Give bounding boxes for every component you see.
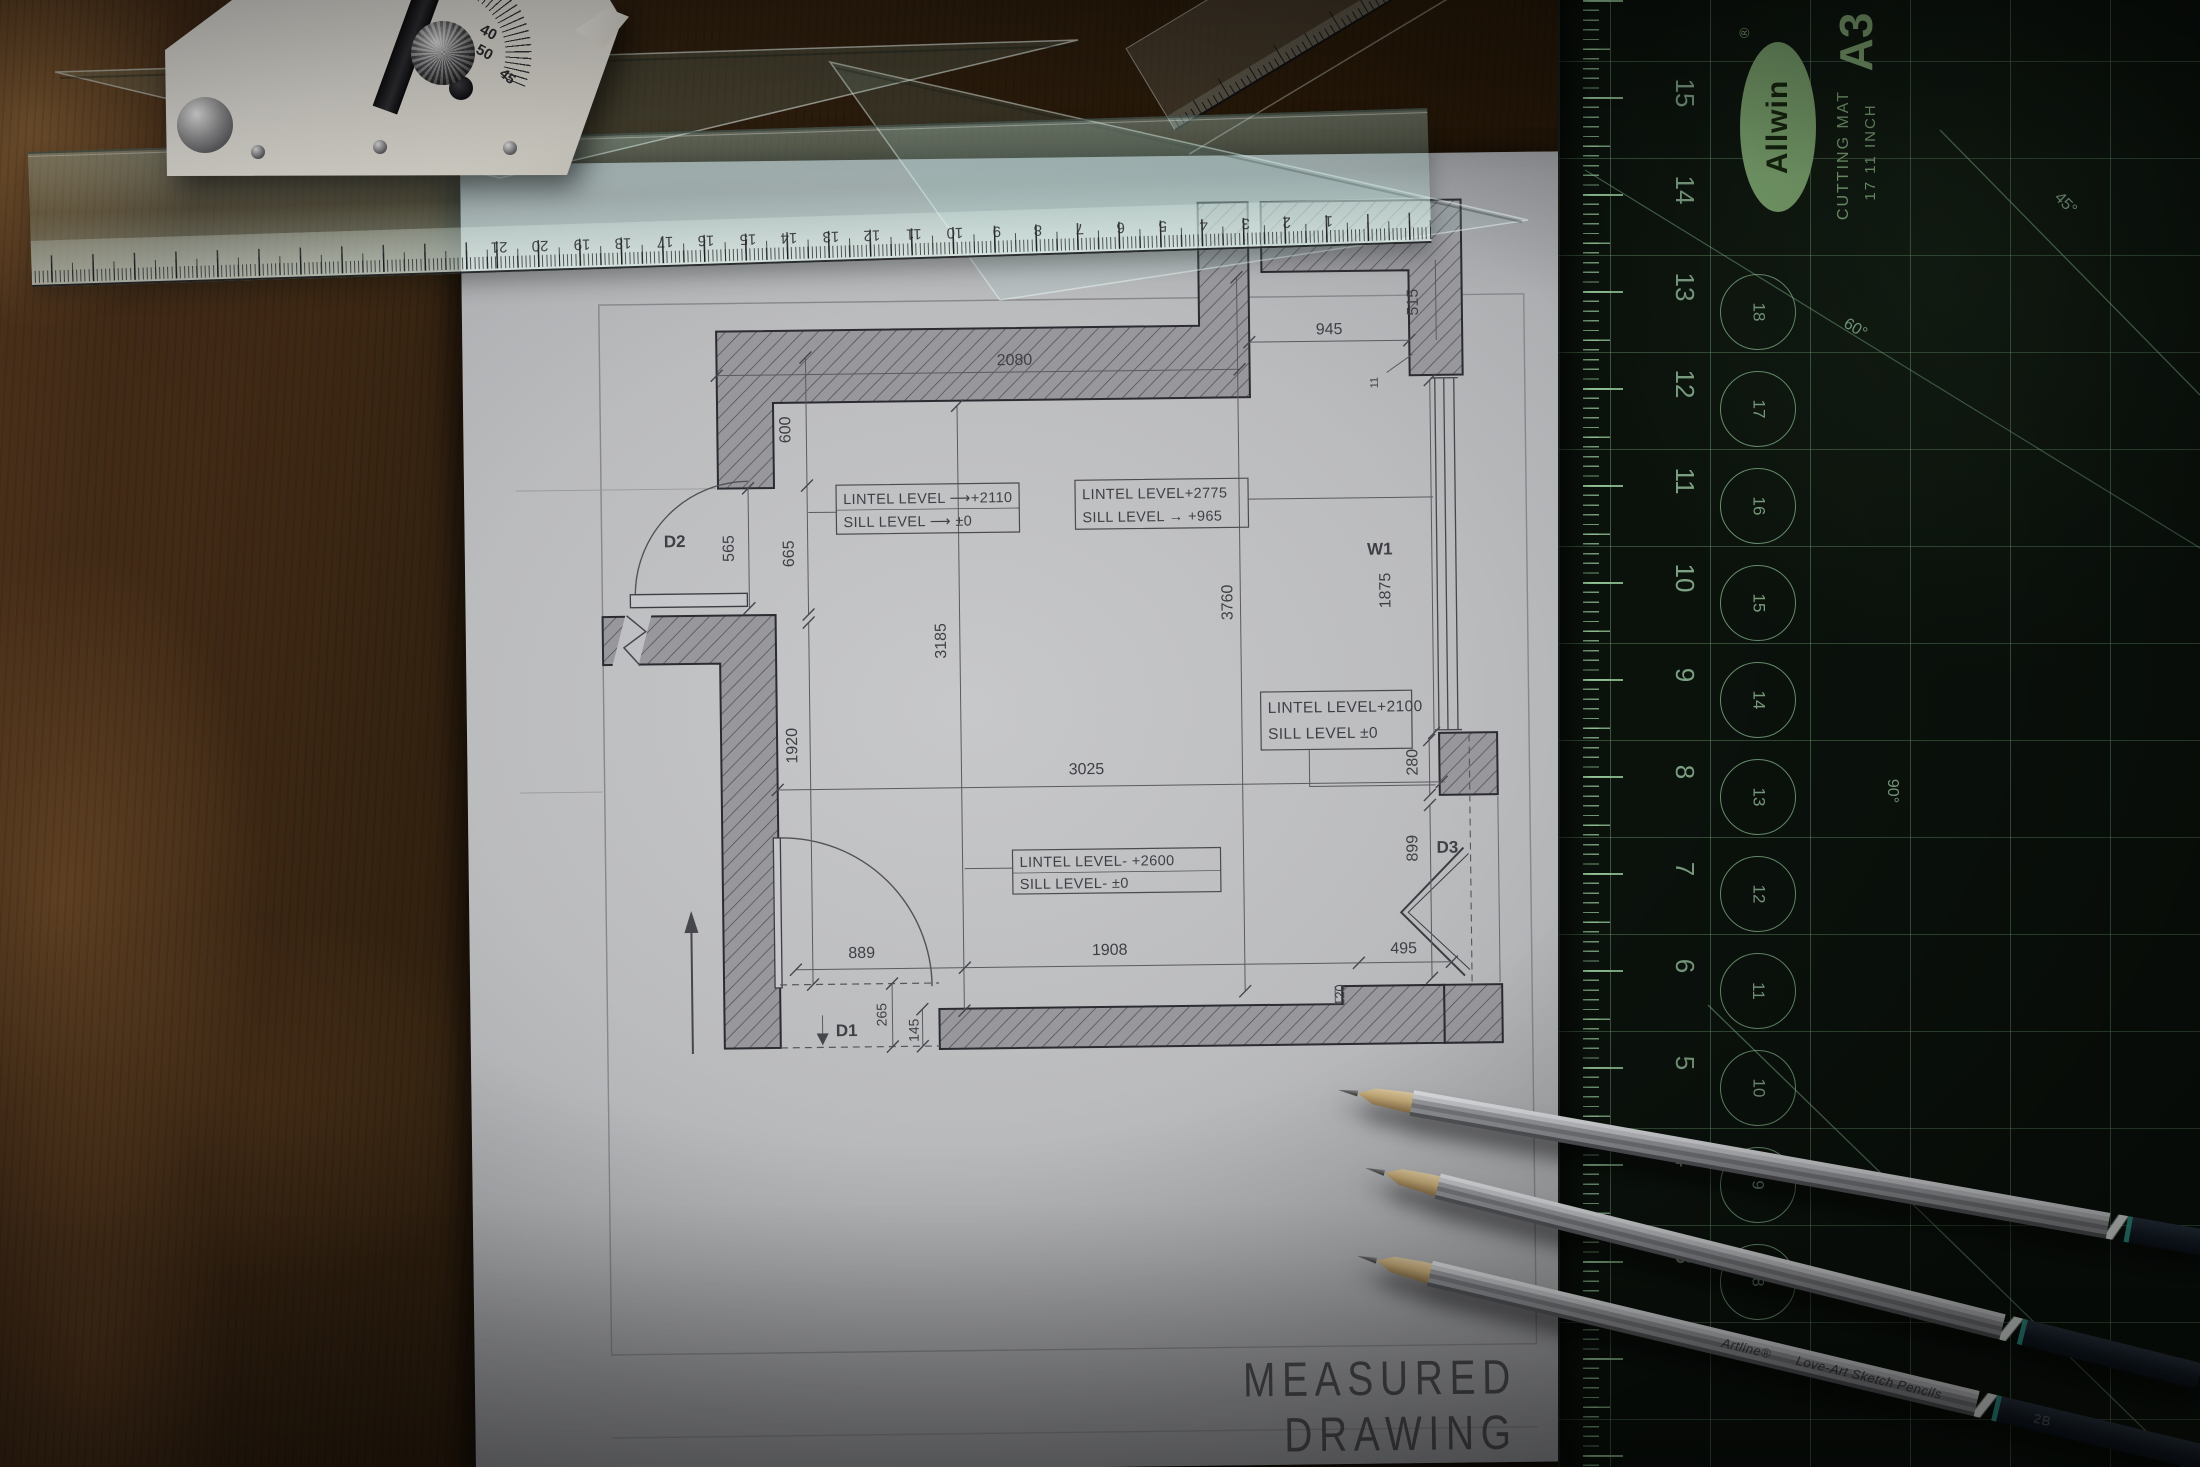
mat-circle-label: 12 — [1748, 885, 1768, 904]
label-d3: D3 — [1436, 838, 1458, 857]
mat-circle-number: 12 — [1720, 856, 1796, 932]
label-d2: D2 — [664, 532, 686, 551]
dim-945: 945 — [1316, 321, 1343, 338]
mat-circle-label: 16 — [1748, 497, 1768, 516]
dim-495: 495 — [1390, 940, 1417, 957]
mat-grid-number: 7 — [1670, 854, 1700, 884]
dim-1908: 1908 — [1092, 942, 1128, 959]
mat-circle-label: 15 — [1748, 594, 1768, 613]
note-lintel-2600: LINTEL LEVEL- +2600 — [1020, 853, 1175, 871]
ruler-number: 19 — [571, 235, 594, 253]
mat-circle-number: 15 — [1720, 565, 1796, 641]
dim-2080: 2080 — [997, 352, 1033, 369]
note-sill-0b: SILL LEVEL ±0 — [1268, 725, 1378, 743]
ruler-number: 6 — [1110, 218, 1133, 236]
dim-11: 11 — [1369, 377, 1381, 389]
mat-grid-number: 11 — [1670, 466, 1700, 496]
ruler-number: 3 — [1234, 214, 1257, 232]
entry-arrow — [684, 911, 700, 1054]
mat-grid-number: 15 — [1670, 78, 1700, 108]
mat-grid-number: 12 — [1670, 369, 1700, 399]
dim-3185: 3185 — [933, 623, 950, 659]
photo-scene: 2080 945 515 11 600 565 665 1920 3185 37… — [0, 0, 2200, 1467]
mat-circle-number: 10 — [1720, 1050, 1796, 1126]
dim-515: 515 — [1405, 289, 1422, 316]
ruler-number: 16 — [695, 231, 718, 249]
note-boxes — [836, 476, 1414, 896]
rivet-small — [251, 145, 265, 159]
ruler-number: 8 — [1027, 221, 1050, 239]
ruler-number: 11 — [903, 225, 926, 243]
mat-grid-number: 10 — [1670, 563, 1700, 593]
ruler-number: 20 — [529, 237, 552, 255]
mat-circle-label: 14 — [1748, 691, 1768, 710]
dim-265: 265 — [873, 1003, 889, 1027]
note-lintel-2110: LINTEL LEVEL ⟶+2110 — [843, 490, 1013, 508]
mat-grid-number: 5 — [1670, 1048, 1700, 1078]
mat-circle-number: 14 — [1720, 662, 1796, 738]
dim-280: 280 — [1404, 749, 1421, 776]
rivet-small — [503, 141, 517, 155]
rivet-small — [373, 140, 387, 154]
pencil-brand: Artline® — [1720, 1335, 1773, 1361]
ruler-number: 2 — [1275, 213, 1298, 231]
rivet-large — [177, 97, 233, 153]
dim-120: 120 — [1332, 984, 1347, 1006]
dim-1875: 1875 — [1377, 573, 1394, 609]
pencil-lead-tip — [1337, 1087, 1358, 1097]
dim-600: 600 — [777, 416, 794, 443]
ruler-number: 1 — [1317, 212, 1340, 230]
paper-shadow-on-mat — [1558, 0, 1592, 1467]
mat-grid-number: 6 — [1670, 951, 1700, 981]
mat-circle-label: 13 — [1748, 788, 1768, 807]
dim-1920: 1920 — [784, 728, 801, 764]
pencil-lead-tip — [1356, 1253, 1377, 1264]
dim-899: 899 — [1404, 835, 1421, 862]
adjustable-set-square-head: 40 50 45 — [80, 0, 650, 200]
ruler-number: 15 — [737, 230, 760, 248]
opening-labels: D2 D1 D3 W1 — [664, 523, 1461, 1043]
dim-145: 145 — [906, 1018, 922, 1042]
label-d1: D1 — [836, 1021, 858, 1040]
mat-circle-label: 11 — [1748, 982, 1768, 1000]
ruler-number: 9 — [986, 222, 1009, 240]
dim-3025: 3025 — [1069, 761, 1105, 778]
note-sill-0a: SILL LEVEL ⟶ ±0 — [843, 514, 972, 532]
note-texts: LINTEL LEVEL ⟶+2110 SILL LEVEL ⟶ ±0 LINT… — [843, 483, 1425, 895]
mat-circle-label: 18 — [1748, 303, 1768, 322]
dim-889: 889 — [848, 945, 875, 962]
mat-grid-number: 13 — [1670, 272, 1700, 302]
door-d1 — [773, 836, 940, 1048]
locking-knob — [411, 21, 475, 85]
mat-type-label: CUTTING MAT — [1834, 75, 1854, 235]
dim-3760: 3760 — [1219, 584, 1236, 620]
ruler-number: 4 — [1192, 216, 1215, 234]
dim-565: 565 — [721, 535, 738, 562]
pencil-grade: 2B — [2032, 1410, 2053, 1429]
note-lintel-2775: LINTEL LEVEL+2775 — [1082, 485, 1228, 503]
mat-angle-90: 90° — [1883, 779, 1901, 803]
mat-grid-number: 14 — [1670, 175, 1700, 205]
mat-circle-label: 10 — [1748, 1079, 1768, 1098]
drawing-title: MEASURED DRAWING — [1082, 1350, 1517, 1466]
set-square-head-body: 40 50 45 — [80, 0, 650, 200]
ruler-number: 5 — [1151, 217, 1174, 235]
ruler-number: 10 — [944, 224, 967, 242]
mat-brand-logo: Allwin — [1740, 42, 1816, 212]
mat-circle-number: 13 — [1720, 759, 1796, 835]
mat-registered-mark: ® — [1736, 18, 1756, 38]
mat-brand-text: Allwin — [1761, 80, 1795, 174]
mat-spec-label: 17 11 INCH — [1861, 72, 1879, 232]
mat-circle-number: 17 — [1720, 371, 1796, 447]
note-lintel-2100: LINTEL LEVEL+2100 — [1268, 698, 1423, 717]
mat-circle-number: 16 — [1720, 468, 1796, 544]
ruler-number: 14 — [778, 229, 801, 247]
note-sill-0c: SILL LEVEL- ±0 — [1020, 876, 1129, 893]
ruler-number: 21 — [488, 238, 511, 256]
mat-circle-number: 11 — [1720, 953, 1796, 1029]
note-sill-965: SILL LEVEL → +965 — [1082, 508, 1222, 526]
ruler-number: 7 — [1069, 220, 1092, 238]
pencil-lead-tip — [1364, 1165, 1385, 1177]
label-w1: W1 — [1367, 539, 1393, 558]
mat-circle-number: 18 — [1720, 274, 1796, 350]
mat-grid-number: 8 — [1670, 757, 1700, 787]
ruler-number: 12 — [861, 226, 884, 244]
dim-665: 665 — [781, 540, 798, 567]
mat-circle-label: 9 — [1748, 1180, 1768, 1189]
walls — [598, 199, 1503, 1053]
ruler-number: 13 — [820, 228, 843, 246]
mat-circle-label: 17 — [1748, 400, 1768, 419]
mat-grid-number: 9 — [1670, 660, 1700, 690]
window-w1 — [1431, 378, 1462, 730]
ruler-number: 18 — [612, 234, 635, 252]
ruler-number: 17 — [654, 233, 677, 251]
